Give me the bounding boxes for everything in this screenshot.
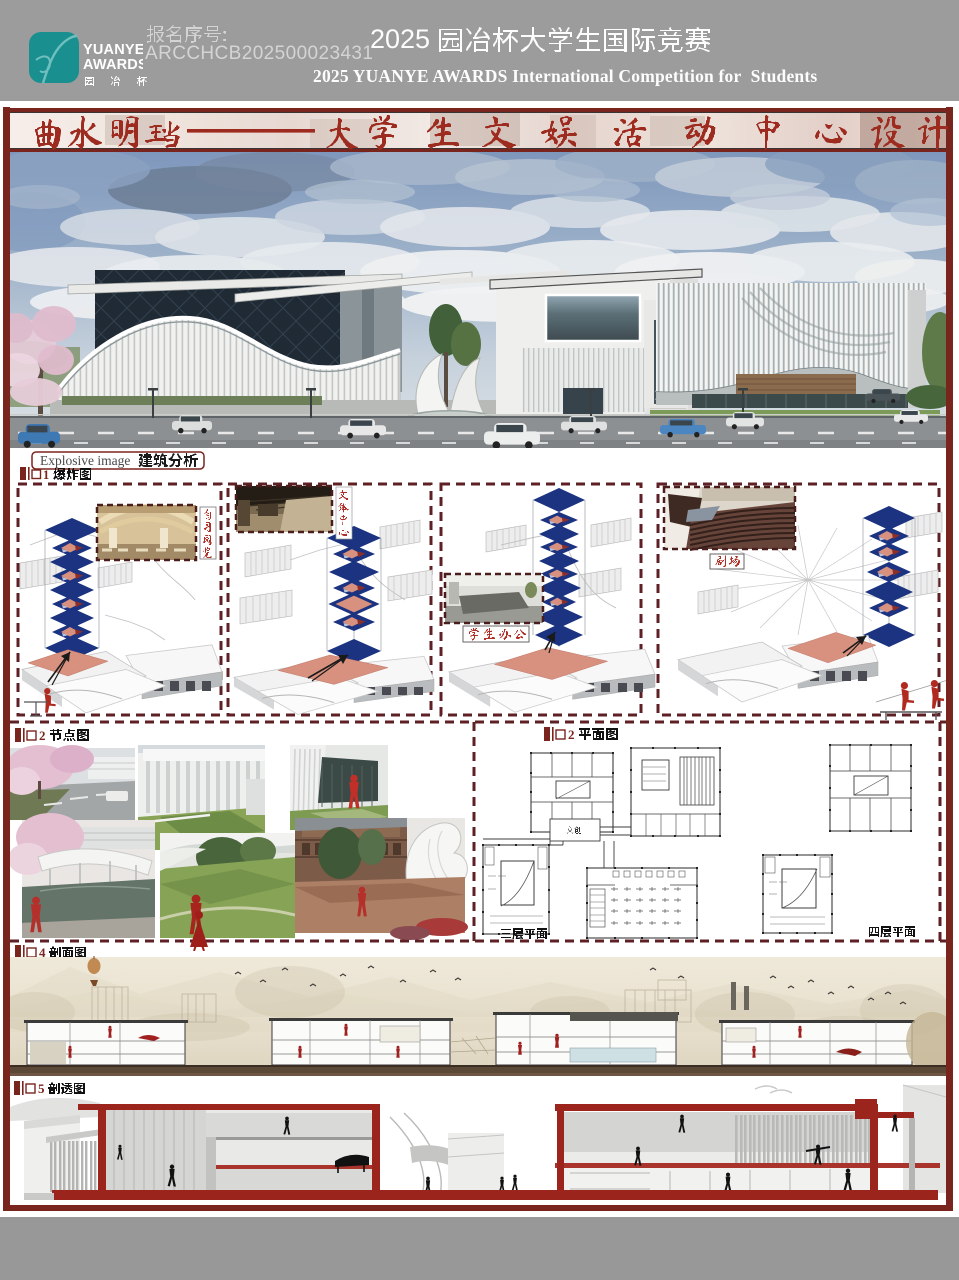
svg-text:2: 2 [39,728,46,743]
svg-text:Explosive image: Explosive image [40,453,130,468]
svg-text:1: 1 [43,468,49,482]
svg-text:5: 5 [38,1081,45,1096]
svg-text:2: 2 [568,727,575,742]
